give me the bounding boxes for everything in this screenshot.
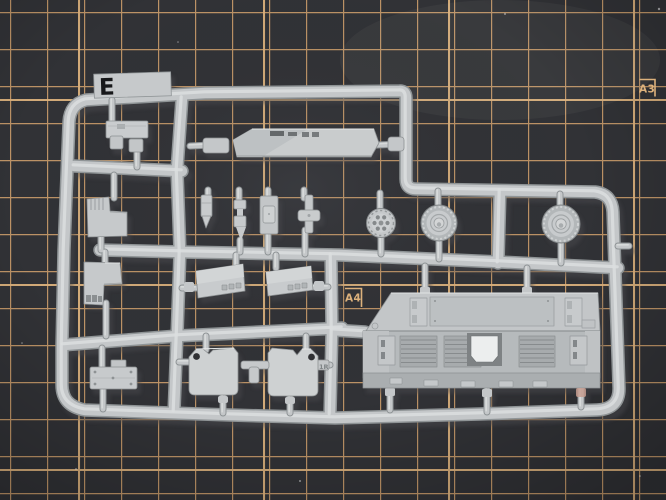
a4-label: A4 — [345, 293, 361, 305]
photo-frame: 1R — [0, 0, 666, 500]
scene-photo: 1R — [0, 0, 666, 500]
a3-label: A3 — [639, 84, 655, 96]
